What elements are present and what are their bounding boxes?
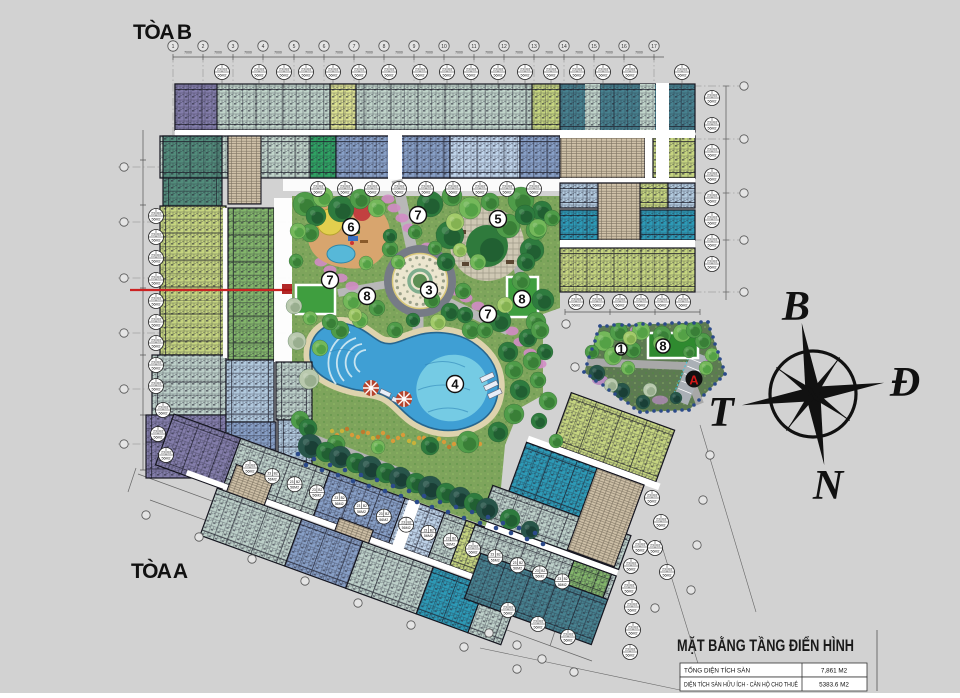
svg-text:B2: B2 [539, 620, 543, 624]
svg-text:B2: B2 [713, 194, 717, 198]
svg-text:B2: B2 [296, 480, 300, 484]
svg-text:13: 13 [531, 44, 537, 50]
svg-text:B2: B2 [621, 298, 625, 302]
svg-text:56M2: 56M2 [658, 303, 667, 307]
svg-text:23: 23 [650, 544, 654, 548]
svg-text:56M2: 56M2 [416, 73, 425, 77]
svg-text:23: 23 [279, 68, 283, 72]
svg-text:B2: B2 [421, 68, 425, 72]
svg-text:23: 23 [503, 606, 507, 610]
svg-text:56M2: 56M2 [513, 567, 522, 571]
svg-text:B2: B2 [285, 68, 289, 72]
svg-text:56M2: 56M2 [335, 502, 344, 506]
svg-text:B2: B2 [662, 518, 666, 522]
svg-text:17: 17 [651, 44, 657, 50]
svg-text:A: A [689, 373, 699, 388]
svg-text:23: 23 [647, 494, 651, 498]
svg-text:B2: B2 [541, 569, 545, 573]
svg-text:23: 23 [624, 584, 628, 588]
svg-text:B2: B2 [430, 528, 434, 532]
svg-text:B2: B2 [157, 254, 161, 258]
svg-text:56M2: 56M2 [503, 190, 512, 194]
svg-text:56M2: 56M2 [152, 387, 161, 391]
svg-text:B2: B2 [668, 568, 672, 572]
svg-text:5: 5 [494, 212, 501, 227]
svg-text:B2: B2 [157, 382, 161, 386]
svg-text:56M2: 56M2 [152, 238, 161, 242]
svg-text:B2: B2 [318, 488, 322, 492]
svg-text:56M2: 56M2 [368, 190, 377, 194]
svg-text:B2: B2 [157, 212, 161, 216]
svg-text:B2: B2 [713, 172, 717, 176]
svg-text:7: 7 [414, 208, 421, 223]
svg-text:56M2: 56M2 [708, 265, 717, 269]
svg-text:B2: B2 [598, 298, 602, 302]
svg-text:23: 23 [217, 68, 221, 72]
svg-text:23: 23 [384, 68, 388, 72]
svg-text:4: 4 [262, 44, 265, 50]
svg-text:B2: B2 [631, 648, 635, 652]
svg-text:56M2: 56M2 [255, 73, 264, 77]
svg-text:B2: B2 [508, 185, 512, 189]
svg-text:7000: 7000 [635, 51, 643, 55]
svg-text:1: 1 [172, 44, 175, 50]
svg-text:N: N [812, 463, 845, 509]
svg-text:56M2: 56M2 [446, 542, 455, 546]
svg-text:56M2: 56M2 [657, 523, 666, 527]
svg-text:56M2: 56M2 [547, 73, 556, 77]
svg-text:23: 23 [466, 68, 470, 72]
svg-text:56M2: 56M2 [626, 73, 635, 77]
svg-text:56M2: 56M2 [627, 567, 636, 571]
svg-text:B2: B2 [634, 626, 638, 630]
svg-text:56M2: 56M2 [494, 73, 503, 77]
svg-text:B2: B2 [481, 185, 485, 189]
svg-text:B2: B2 [683, 68, 687, 72]
svg-text:7000: 7000 [214, 51, 222, 55]
svg-text:8: 8 [363, 289, 370, 304]
svg-text:56M2: 56M2 [469, 550, 478, 554]
svg-text:TỔNG DIỆN TÍCH SÀN: TỔNG DIỆN TÍCH SÀN [684, 666, 750, 675]
svg-text:B2: B2 [632, 562, 636, 566]
svg-text:B2: B2 [223, 68, 227, 72]
svg-text:23: 23 [625, 648, 629, 652]
svg-text:23: 23 [707, 194, 711, 198]
svg-text:23: 23 [662, 568, 666, 572]
svg-text:56M2: 56M2 [708, 177, 717, 181]
svg-text:56M2: 56M2 [355, 73, 364, 77]
svg-text:B2: B2 [642, 298, 646, 302]
svg-text:B2: B2 [454, 185, 458, 189]
svg-text:B2: B2 [713, 148, 717, 152]
svg-text:B2: B2 [157, 361, 161, 365]
svg-text:56M2: 56M2 [268, 478, 277, 482]
svg-text:B2: B2 [684, 298, 688, 302]
svg-text:B2: B2 [713, 238, 717, 242]
svg-text:23: 23 [636, 298, 640, 302]
svg-text:23: 23 [394, 185, 398, 189]
svg-text:23: 23 [334, 496, 338, 500]
svg-text:56M2: 56M2 [573, 73, 582, 77]
svg-text:23: 23 [415, 68, 419, 72]
svg-text:B2: B2 [346, 185, 350, 189]
svg-text:23: 23 [627, 603, 631, 607]
svg-text:B2: B2 [552, 68, 556, 72]
svg-text:B2: B2 [577, 298, 581, 302]
svg-text:T: T [708, 390, 736, 436]
svg-text:23: 23 [245, 464, 249, 468]
svg-text:6: 6 [323, 44, 326, 50]
svg-text:56M2: 56M2 [152, 259, 161, 263]
svg-text:56M2: 56M2 [636, 548, 645, 552]
svg-text:56M2: 56M2 [629, 631, 638, 635]
svg-text:56M2: 56M2 [329, 73, 338, 77]
svg-text:23: 23 [151, 339, 155, 343]
svg-text:23: 23 [572, 68, 576, 72]
svg-text:56M2: 56M2 [467, 73, 476, 77]
svg-text:56M2: 56M2 [154, 435, 163, 439]
svg-text:56M2: 56M2 [162, 456, 171, 460]
svg-text:23: 23 [151, 297, 155, 301]
svg-text:B2: B2 [341, 496, 345, 500]
svg-text:56M2: 56M2 [708, 221, 717, 225]
svg-text:56M2: 56M2 [564, 638, 573, 642]
svg-text:56M2: 56M2 [152, 302, 161, 306]
svg-text:B: B [781, 284, 810, 330]
svg-text:56M2: 56M2 [651, 549, 660, 553]
svg-text:B2: B2 [656, 544, 660, 548]
svg-text:7000: 7000 [274, 51, 282, 55]
svg-text:23: 23 [513, 561, 517, 565]
svg-text:DIỆN TÍCH SÀN HỮU ÍCH - CĂN HỘ: DIỆN TÍCH SÀN HỮU ÍCH - CĂN HỘ CHO THUÊ [684, 680, 798, 689]
svg-text:B2: B2 [334, 68, 338, 72]
svg-text:23: 23 [546, 68, 550, 72]
svg-text:23: 23 [367, 185, 371, 189]
svg-text:56M2: 56M2 [530, 190, 539, 194]
svg-text:23: 23 [502, 185, 506, 189]
svg-text:B2: B2 [407, 520, 411, 524]
svg-text:56M2: 56M2 [708, 126, 717, 130]
svg-text:B2: B2 [474, 545, 478, 549]
svg-text:23: 23 [493, 68, 497, 72]
svg-text:B2: B2 [519, 561, 523, 565]
svg-text:56M2: 56M2 [159, 411, 168, 415]
svg-text:56M2: 56M2 [280, 73, 289, 77]
svg-text:23: 23 [707, 172, 711, 176]
svg-text:23: 23 [615, 298, 619, 302]
svg-text:56M2: 56M2 [312, 494, 321, 498]
svg-text:23: 23 [475, 185, 479, 189]
svg-text:56M2: 56M2 [708, 243, 717, 247]
svg-text:B2: B2 [360, 68, 364, 72]
svg-text:7000: 7000 [395, 51, 403, 55]
svg-text:B2: B2 [713, 121, 717, 125]
svg-text:14: 14 [561, 44, 567, 50]
svg-text:56M2: 56M2 [422, 190, 431, 194]
svg-text:7000: 7000 [305, 51, 313, 55]
svg-text:23: 23 [707, 238, 711, 242]
svg-text:23: 23 [401, 520, 405, 524]
svg-text:56M2: 56M2 [504, 611, 513, 615]
svg-text:B2: B2 [499, 68, 503, 72]
svg-text:11: 11 [471, 44, 476, 50]
svg-text:7: 7 [353, 44, 356, 50]
svg-text:7000: 7000 [244, 51, 252, 55]
svg-text:23: 23 [635, 543, 639, 547]
svg-text:7000: 7000 [335, 51, 343, 55]
svg-text:B2: B2 [157, 297, 161, 301]
svg-text:7000: 7000 [365, 51, 373, 55]
svg-text:56M2: 56M2 [616, 303, 625, 307]
svg-text:B2: B2 [641, 543, 645, 547]
svg-text:56M2: 56M2 [152, 323, 161, 327]
svg-text:1: 1 [617, 342, 624, 357]
svg-text:B2: B2 [653, 494, 657, 498]
svg-text:23: 23 [424, 528, 428, 532]
svg-text:23: 23 [158, 406, 162, 410]
svg-text:56M2: 56M2 [152, 281, 161, 285]
svg-text:23: 23 [571, 298, 575, 302]
svg-text:56M2: 56M2 [708, 199, 717, 203]
svg-text:B2: B2 [385, 512, 389, 516]
svg-text:5: 5 [293, 44, 296, 50]
svg-text:23: 23 [301, 68, 305, 72]
svg-text:56M2: 56M2 [491, 559, 500, 563]
svg-text:6: 6 [347, 220, 354, 235]
svg-text:56M2: 56M2 [625, 589, 634, 593]
svg-text:23: 23 [656, 518, 660, 522]
svg-text:56M2: 56M2 [572, 303, 581, 307]
svg-text:56M2: 56M2 [534, 625, 543, 629]
svg-text:B2: B2 [569, 633, 573, 637]
svg-text:B2: B2 [363, 504, 367, 508]
svg-text:4: 4 [451, 377, 459, 392]
svg-text:23: 23 [357, 504, 361, 508]
svg-text:B2: B2 [251, 464, 255, 468]
svg-text:B2: B2 [472, 68, 476, 72]
svg-text:23: 23 [707, 216, 711, 220]
svg-text:23: 23 [446, 537, 450, 541]
svg-text:B2: B2 [713, 94, 717, 98]
svg-text:B2: B2 [157, 233, 161, 237]
svg-text:7: 7 [484, 307, 491, 322]
svg-text:23: 23 [312, 488, 316, 492]
svg-text:B2: B2 [159, 430, 163, 434]
svg-text:23: 23 [254, 68, 258, 72]
svg-text:5383.6 M2: 5383.6 M2 [819, 682, 849, 689]
svg-text:23: 23 [707, 148, 711, 152]
svg-text:B2: B2 [509, 606, 513, 610]
svg-text:56M2: 56M2 [535, 575, 544, 579]
svg-text:56M2: 56M2 [402, 526, 411, 530]
svg-text:7000: 7000 [605, 51, 613, 55]
svg-text:56M2: 56M2 [476, 190, 485, 194]
svg-text:B2: B2 [604, 68, 608, 72]
svg-text:7: 7 [326, 273, 333, 288]
svg-text:9: 9 [413, 44, 416, 50]
svg-text:B2: B2 [390, 68, 394, 72]
svg-text:56M2: 56M2 [663, 573, 672, 577]
svg-text:56M2: 56M2 [302, 73, 311, 77]
svg-text:16: 16 [621, 44, 627, 50]
svg-text:B2: B2 [663, 298, 667, 302]
svg-text:56M2: 56M2 [152, 217, 161, 221]
svg-text:23: 23 [151, 318, 155, 322]
svg-text:23: 23 [598, 68, 602, 72]
svg-text:B2: B2 [307, 68, 311, 72]
svg-text:23: 23 [628, 626, 632, 630]
svg-text:B2: B2 [713, 216, 717, 220]
svg-text:56M2: 56M2 [679, 303, 688, 307]
svg-text:23: 23 [626, 562, 630, 566]
svg-text:56M2: 56M2 [379, 518, 388, 522]
svg-text:12: 12 [501, 44, 507, 50]
svg-text:TÒA B: TÒA B [133, 20, 192, 44]
svg-text:B2: B2 [157, 318, 161, 322]
svg-text:B2: B2 [157, 339, 161, 343]
svg-text:23: 23 [533, 620, 537, 624]
svg-text:23: 23 [313, 185, 317, 189]
svg-text:8: 8 [383, 44, 386, 50]
svg-text:23: 23 [557, 577, 561, 581]
svg-text:23: 23 [151, 276, 155, 280]
svg-text:56M2: 56M2 [708, 99, 717, 103]
svg-text:7000: 7000 [575, 51, 583, 55]
svg-text:10: 10 [441, 44, 447, 50]
svg-text:15: 15 [591, 44, 597, 50]
svg-text:56M2: 56M2 [290, 486, 299, 490]
svg-text:56M2: 56M2 [648, 499, 657, 503]
svg-text:B2: B2 [630, 584, 634, 588]
svg-text:56M2: 56M2 [637, 303, 646, 307]
svg-text:23: 23 [520, 68, 524, 72]
svg-text:23: 23 [707, 260, 711, 264]
svg-text:56M2: 56M2 [152, 366, 161, 370]
svg-text:7000: 7000 [184, 51, 192, 55]
svg-text:56M2: 56M2 [385, 73, 394, 77]
svg-text:23: 23 [535, 569, 539, 573]
svg-text:2: 2 [202, 44, 205, 50]
svg-text:B2: B2 [535, 185, 539, 189]
svg-text:B2: B2 [633, 603, 637, 607]
svg-text:56M2: 56M2 [357, 510, 366, 514]
svg-text:23: 23 [328, 68, 332, 72]
svg-text:23: 23 [677, 68, 681, 72]
svg-text:56M2: 56M2 [443, 73, 452, 77]
svg-text:23: 23 [707, 121, 711, 125]
svg-text:56M2: 56M2 [424, 534, 433, 538]
svg-text:23: 23 [354, 68, 358, 72]
svg-text:8: 8 [659, 339, 666, 354]
svg-text:3: 3 [232, 44, 235, 50]
svg-text:56M2: 56M2 [678, 73, 687, 77]
svg-text:B2: B2 [167, 451, 171, 455]
svg-text:7000: 7000 [545, 51, 553, 55]
svg-text:B2: B2 [564, 577, 568, 581]
svg-text:23: 23 [290, 480, 294, 484]
svg-text:56M2: 56M2 [708, 153, 717, 157]
svg-text:23: 23 [448, 185, 452, 189]
svg-text:B2: B2 [631, 68, 635, 72]
svg-text:B2: B2 [578, 68, 582, 72]
svg-text:23: 23 [151, 254, 155, 258]
svg-text:56M2: 56M2 [218, 73, 227, 77]
svg-text:Đ: Đ [889, 360, 920, 406]
svg-text:56M2: 56M2 [152, 344, 161, 348]
svg-text:23: 23 [678, 298, 682, 302]
svg-text:56M2: 56M2 [314, 190, 323, 194]
svg-text:B2: B2 [319, 185, 323, 189]
svg-text:23: 23 [625, 68, 629, 72]
svg-text:56M2: 56M2 [521, 73, 530, 77]
svg-text:23: 23 [657, 298, 661, 302]
svg-text:23: 23 [592, 298, 596, 302]
svg-text:56M2: 56M2 [599, 73, 608, 77]
svg-text:23: 23 [151, 212, 155, 216]
svg-text:7000: 7000 [425, 51, 433, 55]
svg-text:23: 23 [151, 382, 155, 386]
svg-text:B2: B2 [260, 68, 264, 72]
svg-text:B2: B2 [526, 68, 530, 72]
svg-text:23: 23 [421, 185, 425, 189]
svg-text:B2: B2 [448, 68, 452, 72]
svg-text:B2: B2 [164, 406, 168, 410]
svg-text:23: 23 [563, 633, 567, 637]
svg-text:7,861 M2: 7,861 M2 [821, 668, 848, 675]
svg-text:56M2: 56M2 [246, 469, 255, 473]
svg-text:B2: B2 [427, 185, 431, 189]
svg-text:23: 23 [340, 185, 344, 189]
svg-text:B2: B2 [400, 185, 404, 189]
svg-text:3: 3 [425, 283, 432, 298]
svg-text:23: 23 [151, 233, 155, 237]
svg-text:23: 23 [153, 430, 157, 434]
svg-text:8: 8 [518, 292, 525, 307]
svg-text:B2: B2 [452, 537, 456, 541]
svg-text:56M2: 56M2 [449, 190, 458, 194]
svg-text:23: 23 [490, 553, 494, 557]
svg-text:7000: 7000 [455, 51, 463, 55]
svg-text:B2: B2 [373, 185, 377, 189]
svg-text:23: 23 [379, 512, 383, 516]
svg-text:23: 23 [707, 94, 711, 98]
svg-text:23: 23 [468, 545, 472, 549]
svg-text:MẶT BẰNG TẦNG ĐIỂN HÌNH: MẶT BẰNG TẦNG ĐIỂN HÌNH [677, 636, 854, 655]
svg-text:TÒA A: TÒA A [131, 559, 188, 583]
svg-text:7000: 7000 [485, 51, 493, 55]
svg-text:56M2: 56M2 [626, 653, 635, 657]
svg-text:23: 23 [267, 472, 271, 476]
svg-text:56M2: 56M2 [593, 303, 602, 307]
svg-text:23: 23 [529, 185, 533, 189]
svg-text:7000: 7000 [515, 51, 523, 55]
svg-text:56M2: 56M2 [628, 608, 637, 612]
svg-text:B2: B2 [157, 276, 161, 280]
svg-text:B2: B2 [274, 472, 278, 476]
svg-text:56M2: 56M2 [395, 190, 404, 194]
svg-text:B2: B2 [497, 553, 501, 557]
svg-text:23: 23 [442, 68, 446, 72]
svg-text:23: 23 [151, 361, 155, 365]
svg-text:56M2: 56M2 [558, 583, 567, 587]
svg-text:B2: B2 [713, 260, 717, 264]
svg-text:23: 23 [161, 451, 165, 455]
svg-text:56M2: 56M2 [341, 190, 350, 194]
